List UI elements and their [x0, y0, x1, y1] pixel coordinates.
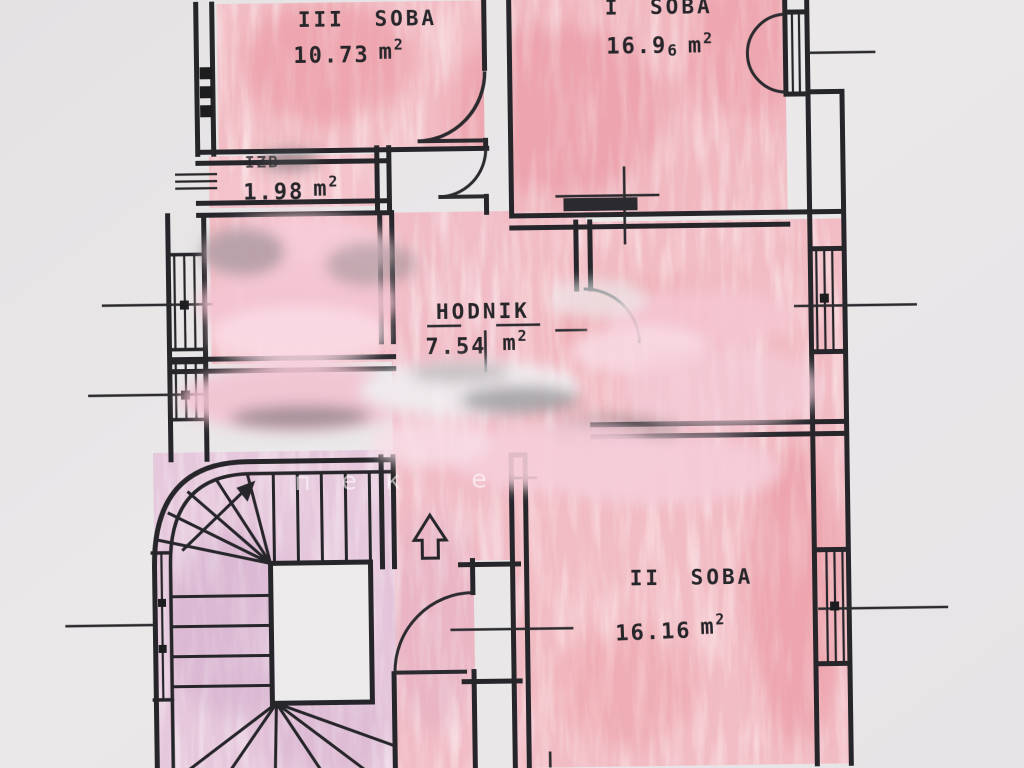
- floor-plan-svg: III SOBA 10.73m2 I SOBA 16.96m2 IZB 1.98…: [0, 0, 1024, 768]
- stair-core-landing: [270, 562, 372, 703]
- sliding-door-panel: [563, 197, 637, 211]
- room-i-soba-name: I SOBA: [605, 0, 713, 20]
- door-leaf-izb: [438, 196, 486, 197]
- room-ii-soba-name: II SOBA: [630, 565, 754, 591]
- door-leaf-soba3: [418, 140, 486, 141]
- hodnik-name: HODNIK: [436, 299, 530, 324]
- floor-plan-photo: III SOBA 10.73m2 I SOBA 16.96m2 IZB 1.98…: [0, 0, 1024, 768]
- room-iii-soba-name: III SOBA: [298, 6, 437, 32]
- room-i-soba-area: 16.96m2: [606, 29, 714, 61]
- lower-corridor-strip: [473, 560, 514, 768]
- door-leaf-lower-hall: [395, 672, 467, 673]
